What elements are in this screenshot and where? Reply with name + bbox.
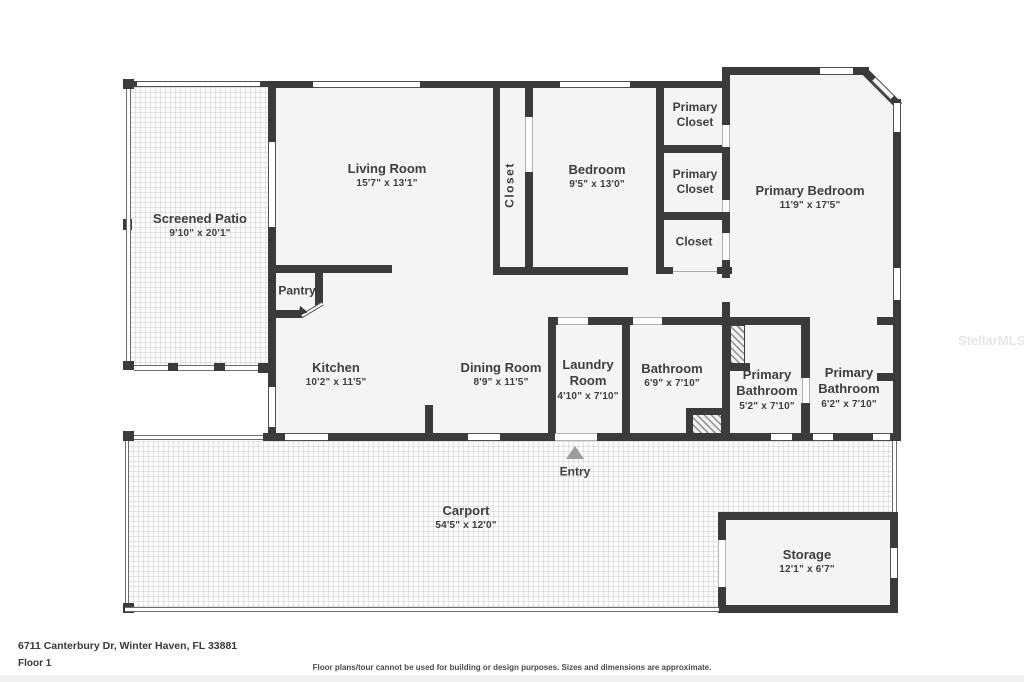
screen-wall [178, 365, 214, 371]
post [123, 431, 134, 441]
hatched-area [730, 325, 745, 364]
wall [662, 317, 722, 325]
window [268, 387, 276, 427]
wall [656, 212, 730, 220]
room-label-closet: Closet [503, 162, 518, 208]
window [285, 433, 328, 441]
wall [525, 87, 533, 267]
wall [622, 317, 630, 441]
screen-wall [134, 365, 168, 371]
room-label-carport: Carport 54'5" x 12'0" [435, 503, 496, 533]
closet-door-opening [722, 200, 730, 212]
closet-door-opening [722, 233, 730, 260]
room-label-screened-patio: Screened Patio 9'10" x 20'1" [153, 211, 247, 241]
post [258, 363, 273, 373]
window [771, 433, 792, 441]
post [168, 363, 178, 371]
carport-edge [125, 441, 129, 603]
wall [493, 267, 533, 275]
window [893, 103, 901, 132]
wall [877, 317, 901, 325]
wall [276, 265, 392, 273]
post [214, 363, 225, 371]
stellar-mls-watermark: StellarMLS [958, 333, 1024, 348]
screen-wall [225, 365, 258, 371]
wall [718, 512, 726, 540]
footer-bar [0, 675, 1024, 682]
door-opening [802, 378, 810, 403]
entry-door-opening [555, 433, 597, 441]
wall [425, 405, 433, 441]
window [813, 433, 833, 441]
room-label-pantry: Pantry [278, 284, 315, 299]
window [820, 67, 853, 75]
wall [722, 147, 730, 200]
wall [315, 273, 323, 306]
entry-arrow-icon [566, 446, 584, 459]
wall [801, 325, 810, 378]
window [137, 81, 260, 87]
room-label-dining-room: Dining Room 8'9" x 11'5" [461, 360, 542, 390]
wall [801, 403, 810, 441]
wall [718, 512, 898, 520]
window [468, 433, 500, 441]
floorplan-canvas: Screened Patio 9'10" x 20'1" Living Room… [0, 0, 1024, 682]
door-opening [628, 267, 656, 274]
room-label-primary-closet-2: Primary Closet [670, 167, 720, 197]
wall [722, 260, 730, 278]
storage-door-opening [718, 540, 726, 587]
carport-beam [134, 435, 263, 440]
room-label-bedroom: Bedroom 9'5" x 13'0" [568, 162, 625, 192]
post [123, 361, 134, 370]
window [268, 142, 276, 227]
opening-line [673, 271, 717, 272]
wall [493, 87, 500, 275]
carport-edge [892, 441, 897, 512]
room-label-primary-bathroom-2: Primary Bathroom 6'2" x 7'10" [814, 365, 884, 411]
carport-edge [125, 607, 719, 612]
wall [718, 605, 898, 613]
room-label-kitchen: Kitchen 10'2" x 11'5" [306, 360, 367, 390]
room-label-primary-bathroom-1: Primary Bathroom 5'2" x 7'10" [732, 367, 802, 413]
window [560, 81, 630, 88]
door-opening [558, 317, 588, 325]
hatched-area [692, 414, 722, 434]
closet-door-opening [722, 125, 730, 147]
wall [656, 145, 730, 153]
window [893, 268, 901, 300]
door-opening [722, 278, 730, 302]
wall [722, 75, 730, 125]
wall [656, 87, 664, 274]
entry-label: Entry [560, 465, 591, 480]
post [123, 79, 134, 89]
room-label-storage: Storage 12'1" x 6'7" [779, 547, 835, 577]
wall [686, 408, 692, 441]
wall [722, 317, 810, 325]
room-label-laundry-room: Laundry Room 4'10" x 7'10" [557, 357, 618, 403]
window [313, 81, 420, 88]
window [890, 548, 898, 578]
closet-door-opening [525, 117, 533, 172]
door-opening [633, 317, 662, 325]
room-label-bathroom: Bathroom 6'9" x 7'10" [641, 361, 702, 391]
window [873, 433, 890, 441]
wall [656, 267, 673, 274]
room-label-living-room: Living Room 15'7" x 13'1" [348, 161, 427, 191]
wall [548, 317, 556, 441]
room-label-closet-3: Closet [676, 235, 713, 250]
disclaimer-text: Floor plans/tour cannot be used for buil… [0, 663, 1024, 672]
room-label-primary-bedroom: Primary Bedroom 11'9" x 17'5" [755, 183, 864, 213]
screen-wall [126, 89, 131, 361]
wall [533, 267, 628, 275]
address-text: 6711 Canterbury Dr, Winter Haven, FL 338… [18, 640, 237, 652]
room-label-primary-closet-1: Primary Closet [670, 100, 720, 130]
wall [722, 325, 730, 441]
